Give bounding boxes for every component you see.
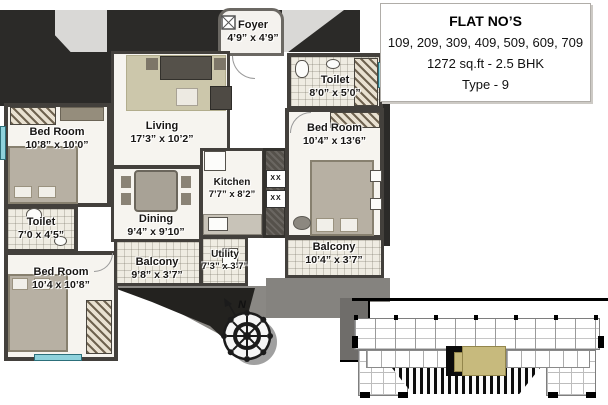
pillow — [14, 186, 32, 198]
keyplan-mid-units — [366, 350, 448, 368]
room-name: Toilet — [6, 216, 76, 229]
room-name: Toilet — [288, 74, 382, 87]
room-name: Utility — [197, 249, 253, 261]
room-dims: 4’9” x 4’9” — [215, 32, 291, 45]
dresser — [60, 107, 104, 121]
coffee-table — [176, 88, 198, 106]
chair — [181, 176, 191, 188]
label-balcony-right: Balcony 10’4” x 3’7” — [287, 241, 381, 267]
keyplan-mid-units — [506, 350, 590, 368]
nightstand — [370, 198, 382, 210]
keyplan-block — [360, 392, 370, 398]
sink-fixture — [326, 59, 340, 69]
side-table — [146, 58, 158, 70]
room-dims: 9’8” x 3’7” — [114, 269, 200, 282]
compass-rose: N — [214, 296, 282, 368]
room-dims: 9’4” x 9’10” — [110, 226, 202, 239]
room-dims: 7’3” x 3’7” — [197, 261, 253, 273]
room-dims: 10’4” x 3’7” — [287, 254, 381, 267]
info-area: 1272 sq.ft - 2.5 BHK — [427, 56, 544, 71]
pillow — [316, 218, 334, 232]
north-arrow-head — [224, 298, 232, 307]
chair — [121, 193, 131, 205]
room-name: Bed Room — [8, 126, 106, 139]
window — [34, 354, 82, 361]
room-dims: 17’3” x 10’2” — [112, 133, 212, 146]
dining-table — [134, 170, 178, 212]
room-name: Kitchen — [199, 177, 265, 189]
room-name: Bed Room — [286, 122, 383, 135]
room-dims: 10’4” x 13’6” — [286, 135, 383, 148]
keyplan-block — [398, 392, 408, 398]
chair — [181, 193, 191, 205]
window — [0, 126, 6, 160]
label-kitchen: Kitchen 7’7” x 8’2” — [199, 177, 265, 201]
flat-info-box: FLAT NO’S 109, 209, 309, 409, 509, 609, … — [380, 3, 591, 102]
wardrobe — [10, 107, 56, 125]
keyplan-highlighted-unit — [462, 346, 506, 376]
room-name: Dining — [110, 213, 202, 226]
room-name: Balcony — [114, 256, 200, 269]
wall-mass-left — [0, 50, 111, 106]
label-toilet-top: Toilet 8’0” x 5’0” — [288, 74, 382, 100]
north-label: N — [238, 299, 247, 311]
keyplan-block — [586, 392, 596, 398]
room-name: Bed Room — [8, 266, 114, 279]
shaft-mark: XX — [266, 190, 286, 208]
label-dining: Dining 9’4” x 9’10” — [110, 213, 202, 239]
label-toilet-left: Toilet 7’0 x 4’5” — [6, 216, 76, 242]
room-dims: 7’0 x 4’5” — [6, 229, 76, 242]
room-name: Foyer — [215, 19, 291, 32]
label-balcony-left: Balcony 9’8” x 3’7” — [114, 256, 200, 282]
label-foyer: Foyer 4’9” x 4’9” — [215, 19, 291, 45]
room-dims: 8’0” x 5’0” — [288, 87, 382, 100]
info-title: FLAT NO’S — [449, 13, 522, 29]
keyplan-highlighted-unit — [454, 352, 463, 372]
floor-plan-page: XX XX — [0, 0, 608, 405]
room-dims: 7’7” x 8’2” — [199, 189, 265, 201]
room-dims: 10’8” x 10’0” — [8, 139, 106, 152]
kitchen-sink — [208, 217, 228, 231]
fridge — [204, 151, 226, 171]
label-bedroom-right: Bed Room 10’4” x 13’6” — [286, 122, 383, 148]
nightstand — [370, 170, 382, 182]
keyplan-block — [598, 336, 604, 348]
info-flat-numbers: 109, 209, 309, 409, 509, 609, 709 — [388, 35, 583, 50]
door-arc — [232, 56, 255, 79]
label-living: Living 17’3” x 10’2” — [112, 120, 212, 146]
wardrobe — [86, 300, 112, 354]
room-dims: 10’4 x 10’8” — [8, 279, 114, 292]
label-utility: Utility 7’3” x 3’7” — [197, 249, 253, 273]
room-name: Living — [112, 120, 212, 133]
keyplan-frame — [352, 298, 608, 301]
pillow — [340, 218, 358, 232]
keyplan-top-units — [354, 315, 600, 320]
room-name: Balcony — [287, 241, 381, 254]
sofa — [160, 56, 212, 80]
label-bedroom-bottom: Bed Room 10’4 x 10’8” — [8, 266, 114, 292]
armchair — [210, 86, 232, 110]
keyplan-block — [352, 336, 358, 348]
label-bedroom-left: Bed Room 10’8” x 10’0” — [8, 126, 106, 152]
chair — [121, 176, 131, 188]
pouf — [293, 216, 311, 230]
shaft-mark: XX — [266, 170, 286, 188]
info-type: Type - 9 — [462, 77, 509, 92]
side-table — [214, 58, 226, 70]
keyplan-block — [548, 392, 558, 398]
pillow — [38, 186, 56, 198]
